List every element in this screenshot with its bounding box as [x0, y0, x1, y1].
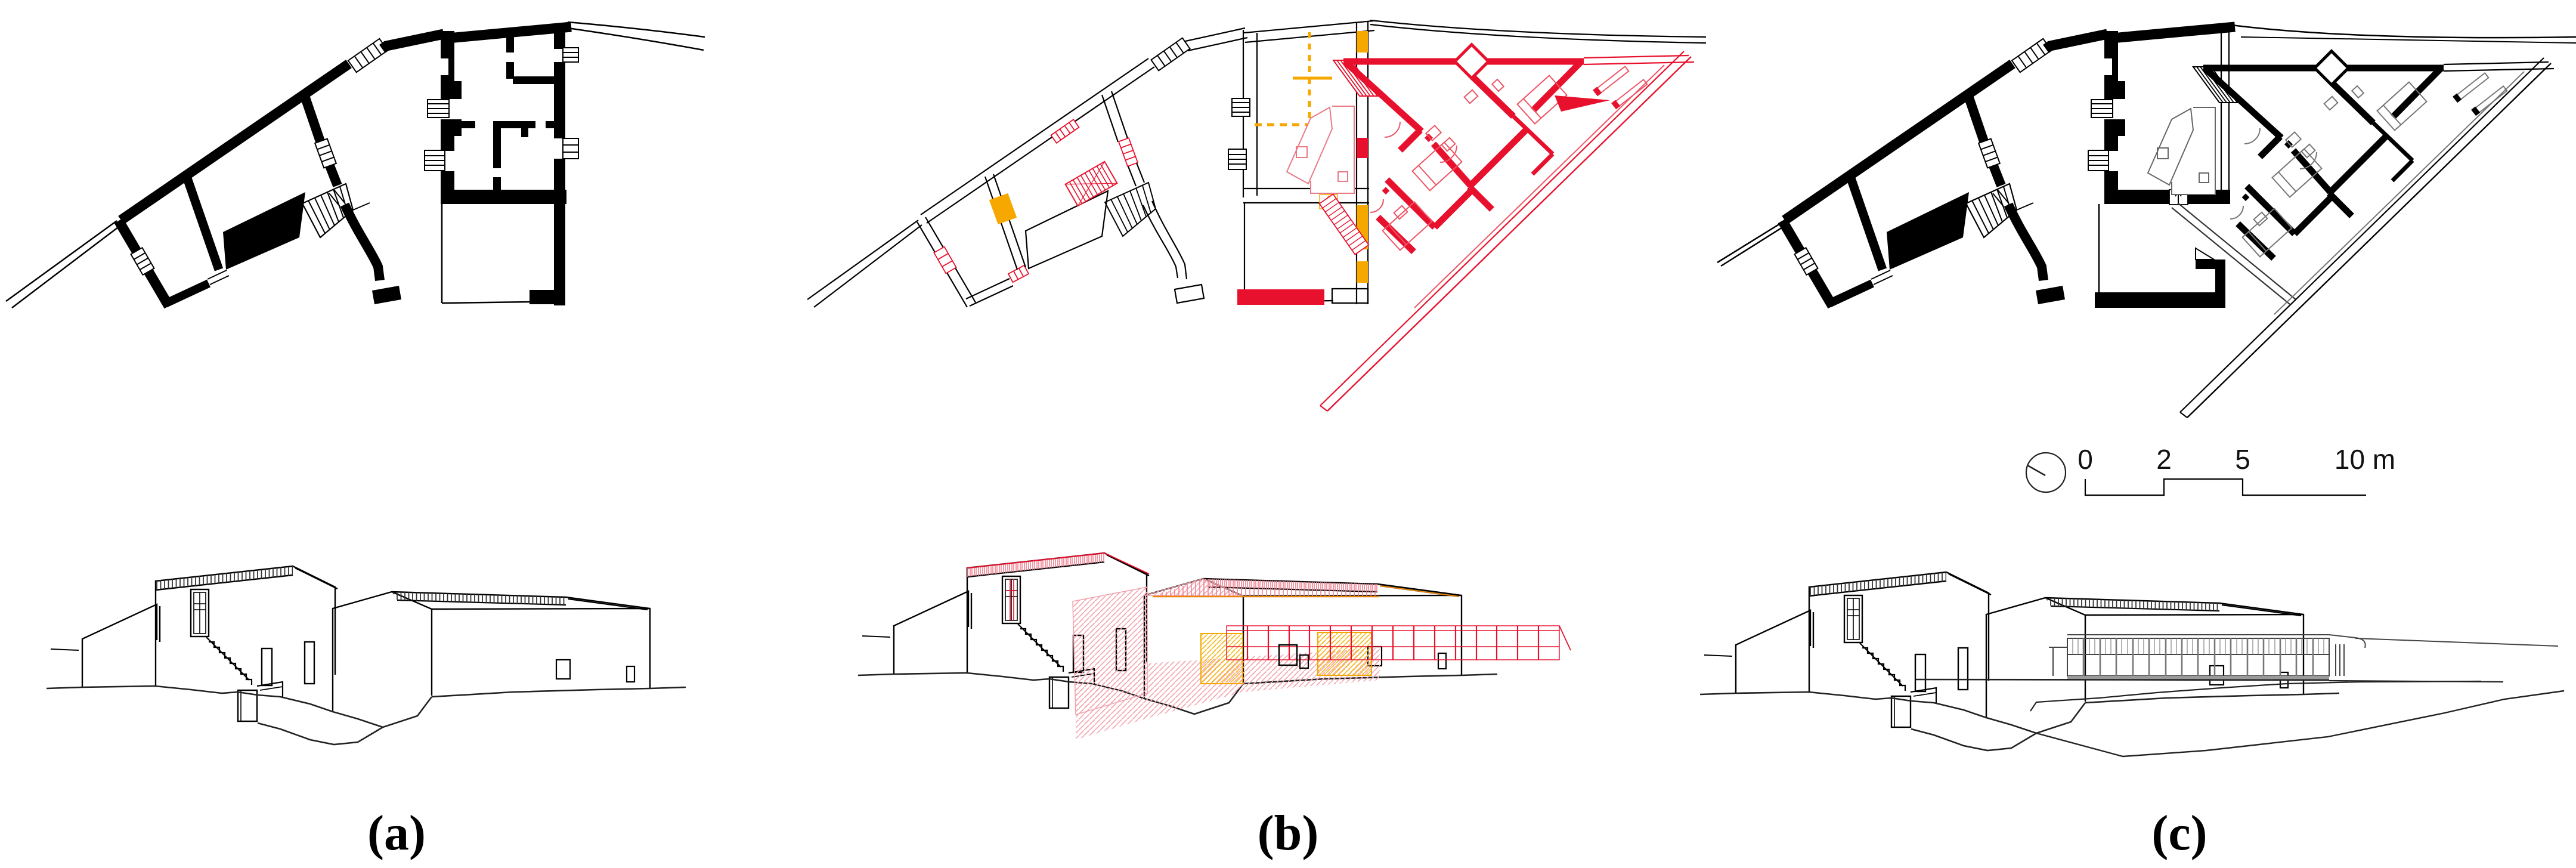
svg-text:2: 2 [2156, 444, 2172, 475]
svg-text:(b): (b) [1258, 805, 1319, 861]
svg-text:(a): (a) [367, 805, 426, 861]
svg-text:(c): (c) [2151, 805, 2207, 861]
svg-text:5: 5 [2235, 444, 2250, 475]
svg-text:10 m: 10 m [2334, 444, 2395, 475]
svg-text:0: 0 [2077, 444, 2093, 475]
